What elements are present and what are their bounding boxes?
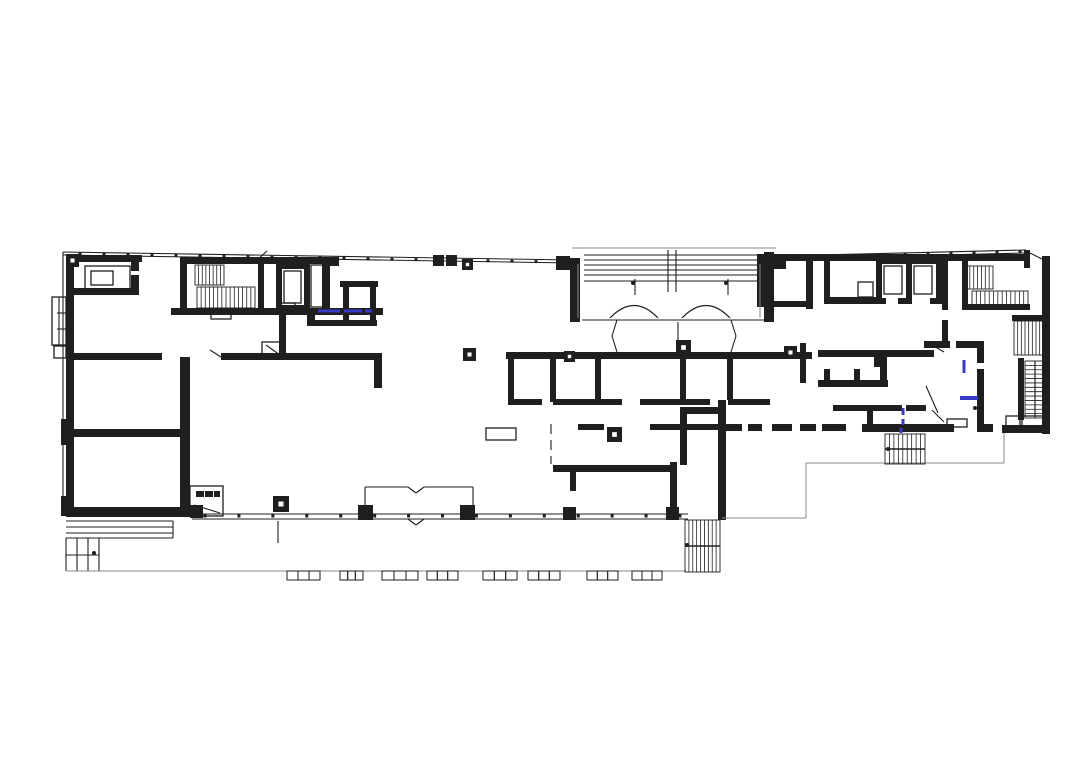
- floor-plan-page: [0, 0, 1072, 768]
- floor-plan-drawing: [0, 0, 1072, 768]
